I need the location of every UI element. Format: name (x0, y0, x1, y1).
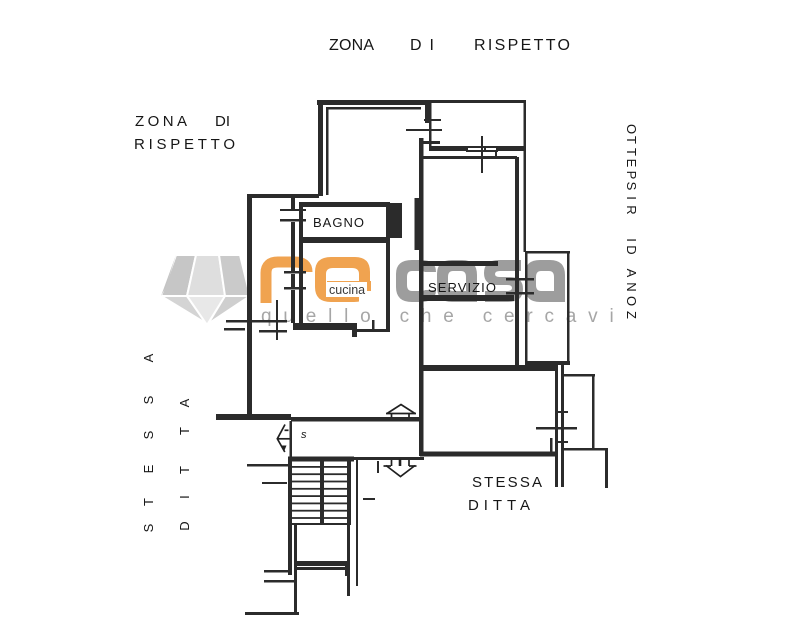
svg-text:T: T (624, 136, 639, 144)
svg-text:s: s (301, 429, 307, 441)
svg-text:DITTA: DITTA (468, 497, 530, 514)
svg-text:T: T (624, 148, 639, 156)
svg-text:RISPETTO: RISPETTO (474, 37, 572, 54)
svg-text:DI: DI (215, 113, 232, 130)
svg-text:RISPETTO: RISPETTO (134, 136, 237, 153)
svg-text:I: I (624, 238, 639, 242)
svg-text:O: O (624, 296, 639, 306)
svg-text:D: D (624, 245, 639, 254)
svg-text:BAGNO: BAGNO (313, 215, 364, 230)
svg-text:I: I (624, 196, 639, 200)
svg-text:R: R (624, 205, 639, 214)
svg-text:T: T (141, 498, 156, 506)
svg-text:T: T (177, 466, 192, 474)
svg-text:cucina: cucina (329, 283, 365, 297)
svg-text:A: A (177, 398, 192, 407)
svg-text:ZONA: ZONA (329, 37, 376, 54)
svg-text:O: O (624, 124, 639, 134)
svg-text:S: S (141, 395, 156, 404)
svg-text:N: N (624, 282, 639, 291)
svg-text:P: P (624, 171, 639, 180)
svg-text:D: D (177, 521, 192, 530)
svg-text:S: S (141, 523, 156, 532)
svg-text:Z: Z (624, 311, 639, 319)
svg-text:T: T (177, 427, 192, 435)
svg-text:S: S (141, 430, 156, 439)
svg-text:A: A (624, 269, 639, 278)
svg-text:E: E (624, 159, 639, 168)
svg-text:DI: DI (410, 37, 436, 54)
svg-text:SERVIZIO: SERVIZIO (428, 280, 496, 295)
svg-text:ZONA: ZONA (135, 113, 189, 130)
svg-text:E: E (141, 464, 156, 473)
svg-text:S: S (624, 182, 639, 191)
svg-text:I: I (177, 495, 192, 499)
svg-text:A: A (141, 353, 156, 362)
